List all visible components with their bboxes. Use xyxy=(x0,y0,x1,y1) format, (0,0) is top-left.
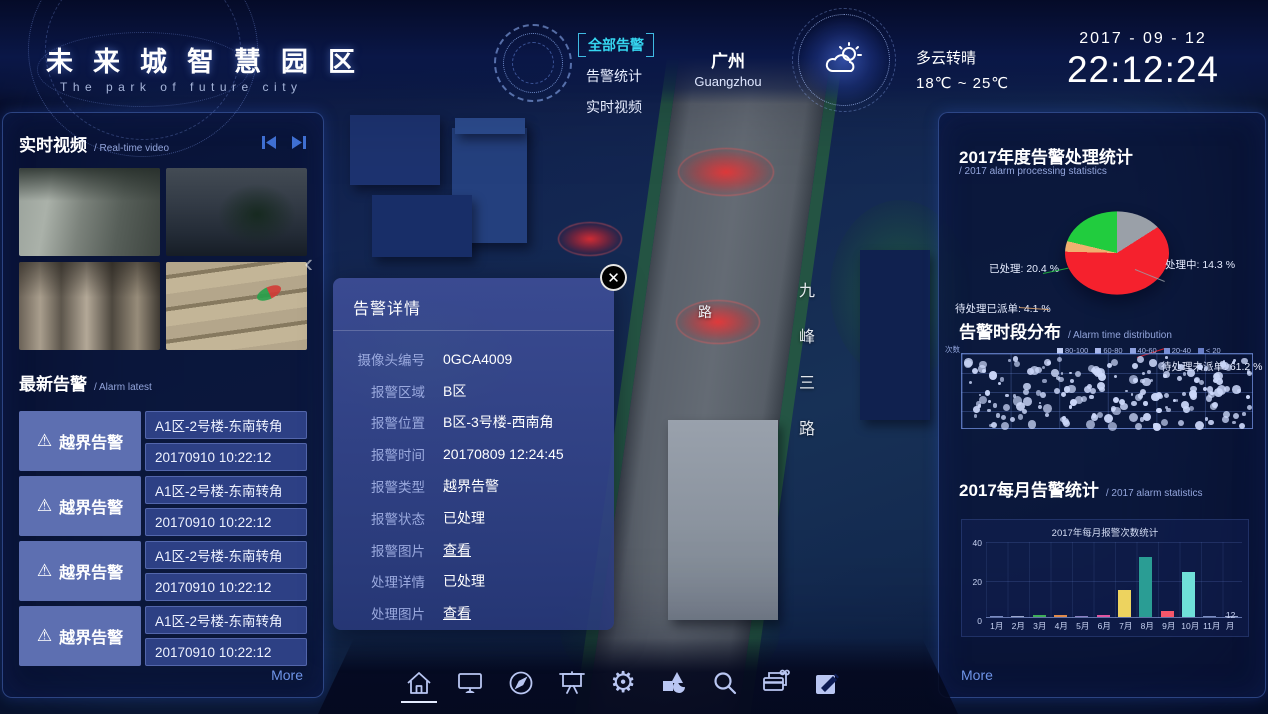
scatter-dot xyxy=(1182,392,1187,397)
scatter-dot xyxy=(1092,413,1096,417)
app-subtitle: The park of future city xyxy=(60,80,303,94)
scatter-dot xyxy=(1161,419,1168,426)
scatter-dot xyxy=(1176,399,1179,402)
scatter-dot xyxy=(993,403,997,407)
alarm-type-badge: ⚠越界告警 xyxy=(19,606,141,666)
alarm-location: A1区-2号楼-东南转角 xyxy=(145,476,307,504)
header: 未来城智慧园区 The park of future city 全部告警告警统计… xyxy=(0,0,1268,104)
skip-next-icon[interactable] xyxy=(291,135,307,150)
scatter-dot xyxy=(1140,389,1146,395)
scatter-dot xyxy=(1131,393,1134,396)
modal-row-value: 20170809 12:24:45 xyxy=(443,446,564,462)
scatter-dot xyxy=(974,414,978,418)
scatter-dot xyxy=(1023,397,1032,406)
bar xyxy=(1075,616,1088,618)
close-icon[interactable]: ✕ xyxy=(600,264,627,291)
right-panel: 2017年度告警处理统计 / 2017 alarm processing sta… xyxy=(938,112,1266,698)
scatter-dot xyxy=(996,413,1000,417)
scatter-dot xyxy=(987,409,990,412)
stats-more-link[interactable]: More xyxy=(961,667,993,683)
alarm-location: A1区-2号楼-东南转角 xyxy=(145,606,307,634)
scatter-dot xyxy=(1043,404,1052,413)
x-tick-label: 6月 xyxy=(1098,620,1111,632)
scatter-dot xyxy=(1153,423,1158,428)
scatter-dot xyxy=(1113,397,1119,403)
alarm-type-label: 越界告警 xyxy=(59,494,123,518)
scatter-dot xyxy=(998,382,1001,385)
weather-widget xyxy=(798,14,890,106)
view-link[interactable]: 查看 xyxy=(443,603,471,623)
scatter-dot xyxy=(1197,364,1203,370)
scatter-dot xyxy=(1214,388,1223,397)
compass-icon[interactable] xyxy=(506,666,536,700)
scatter-dot xyxy=(1199,380,1204,385)
scatter-dot xyxy=(1135,423,1142,430)
scatter-dot xyxy=(988,400,991,403)
scatter-dot xyxy=(1233,413,1239,419)
modal-row-value: 越界告警 xyxy=(443,476,499,496)
scatter-dot xyxy=(1067,385,1075,393)
modal-row-label: 处理图片 xyxy=(333,603,425,623)
bar xyxy=(1118,590,1131,617)
scatter-dot xyxy=(1143,413,1151,421)
modal-row-label: 报警区域 xyxy=(333,381,425,401)
x-tick-label: 5月 xyxy=(1076,620,1089,632)
ring-graphic-icon xyxy=(494,24,572,102)
x-tick-label: 1月 xyxy=(990,620,1003,632)
scatter-dot xyxy=(1008,359,1011,362)
warning-icon: ⚠ xyxy=(37,561,52,581)
y-tick-label: 0 xyxy=(964,616,982,626)
scatter-dot xyxy=(964,358,973,367)
left-panel: 实时视频 / Real-time video ‹ 最新告警 / Alarm la… xyxy=(2,112,324,698)
scatter-dot xyxy=(989,424,993,428)
bar xyxy=(1203,616,1216,618)
scatter-dot xyxy=(1045,413,1050,418)
main-nav: 全部告警告警统计实时视频 xyxy=(578,33,654,119)
date-label: 2017 - 09 - 12 xyxy=(1063,30,1223,48)
scatter-dot xyxy=(1187,369,1195,377)
modal-row-label: 报警时间 xyxy=(333,444,425,464)
bar xyxy=(1161,611,1174,617)
view-link[interactable]: 查看 xyxy=(443,540,471,560)
scatter-dot xyxy=(1062,416,1066,420)
warning-icon: ⚠ xyxy=(37,431,52,451)
alarm-detail-modal: 告警详情 摄像头编号0GCA4009报警区域B区报警位置B区-3号楼-西南角报警… xyxy=(333,278,614,630)
modal-row: 报警时间20170809 12:24:45 xyxy=(333,438,614,470)
scatter-dot xyxy=(1246,395,1250,399)
bar xyxy=(1054,615,1067,617)
scatter-dot xyxy=(1013,356,1018,361)
modal-row-value: 0GCA4009 xyxy=(443,351,512,367)
sun-cloud-icon xyxy=(823,41,865,79)
scatter-dot xyxy=(972,368,978,374)
scatter-dot xyxy=(1111,359,1118,366)
x-tick-label: 9月 xyxy=(1162,620,1175,632)
scatter-dot xyxy=(1143,401,1148,406)
video-thumbnail-2[interactable] xyxy=(166,168,307,256)
scatter-dot xyxy=(1030,366,1039,375)
gear-icon[interactable]: ⚙ xyxy=(608,666,638,700)
scatter-dot xyxy=(1097,412,1104,419)
datetime: 2017 - 09 - 12 22:12:24 xyxy=(1063,30,1223,91)
scatter-dot xyxy=(1239,423,1245,429)
shapes-icon[interactable] xyxy=(659,666,689,700)
scatter-dot xyxy=(1247,405,1252,410)
scatter-dot xyxy=(1147,370,1151,374)
scatter-dot xyxy=(1044,359,1051,366)
scatter-dot xyxy=(1158,362,1166,370)
scatter-dot xyxy=(1247,371,1252,376)
scatter-dot xyxy=(1214,372,1222,380)
scatter-dot xyxy=(1156,392,1162,398)
nav-item[interactable]: 全部告警 xyxy=(578,33,654,57)
bar-plot-area xyxy=(986,542,1242,618)
scatter-dot xyxy=(1125,390,1128,393)
video-grid: ‹ xyxy=(19,168,307,350)
modal-row-label: 报警图片 xyxy=(333,540,425,560)
scatter-dot xyxy=(1096,368,1105,377)
scatter-section-title: 告警时段分布 xyxy=(959,318,1061,343)
scatter-dot xyxy=(1005,394,1009,398)
scatter-axis-label: 次数 xyxy=(945,344,960,355)
alarm-section-title: 最新告警 xyxy=(19,370,87,395)
monitor-icon[interactable] xyxy=(455,666,485,700)
scatter-dot xyxy=(1038,405,1042,409)
bar xyxy=(1182,572,1195,617)
scatter-dot xyxy=(1140,417,1144,421)
city-name-en: Guangzhou xyxy=(683,74,773,89)
scatter-dot xyxy=(1212,402,1218,408)
screen-icon[interactable] xyxy=(557,666,587,700)
scatter-dot xyxy=(1023,383,1031,391)
modal-row: 报警类型越界告警 xyxy=(333,470,614,502)
scatter-dot xyxy=(1135,394,1142,401)
alarm-row[interactable]: ⚠越界告警A1区-2号楼-东南转角20170910 10:22:12 xyxy=(19,476,307,536)
scatter-dot xyxy=(1177,376,1182,381)
pie-slice-label: 处理中: 14.3 % xyxy=(1165,257,1235,272)
alarm-type-badge: ⚠越界告警 xyxy=(19,541,141,601)
scatter-dot xyxy=(1091,368,1096,373)
toolbar: ⚙ xyxy=(404,666,842,700)
scatter-dot xyxy=(1208,420,1214,426)
edit-icon[interactable] xyxy=(812,666,842,700)
alarm-section-subtitle: / Alarm latest xyxy=(94,382,152,393)
bar xyxy=(1033,615,1046,617)
scatter-dot xyxy=(1129,375,1138,384)
bar-chart-title: 2017年每月报警次数统计 xyxy=(962,525,1248,539)
x-tick-label: 4月 xyxy=(1055,620,1068,632)
scatter-dot xyxy=(1001,415,1006,420)
alarm-row[interactable]: ⚠越界告警A1区-2号楼-东南转角20170910 10:22:12 xyxy=(19,541,307,601)
scatter-dot xyxy=(1075,371,1081,377)
scatter-dot xyxy=(1042,366,1045,369)
search-icon[interactable] xyxy=(710,666,740,700)
alarm-row[interactable]: ⚠越界告警A1区-2号楼-东南转角20170910 10:22:12 xyxy=(19,606,307,666)
scatter-dot xyxy=(1129,413,1138,422)
scatter-chart xyxy=(961,353,1253,429)
scatter-dot xyxy=(1057,357,1062,362)
scatter-dot xyxy=(978,365,985,372)
weather-text: 多云转晴 18℃ ~ 25℃ xyxy=(916,47,1009,92)
scatter-dot xyxy=(1178,420,1185,427)
scatter-dot xyxy=(1233,359,1236,362)
scatter-dot xyxy=(1001,422,1009,430)
alarm-type-badge: ⚠越界告警 xyxy=(19,476,141,536)
pie-section-subtitle: / 2017 alarm processing statistics xyxy=(959,166,1107,177)
x-tick-label: 11月 xyxy=(1203,620,1220,632)
scatter-dot xyxy=(1204,366,1209,371)
x-tick-label: 2月 xyxy=(1012,620,1025,632)
scatter-dot xyxy=(1195,421,1204,430)
city-name-cn: 广州 xyxy=(683,47,773,72)
warning-icon: ⚠ xyxy=(37,626,52,646)
scatter-dot xyxy=(1232,421,1236,425)
modal-row-label: 报警位置 xyxy=(333,412,425,432)
video-thumbnail-3[interactable] xyxy=(19,262,160,350)
x-tick-label: 7月 xyxy=(1119,620,1132,632)
alarm-list: ⚠越界告警A1区-2号楼-东南转角20170910 10:22:12⚠越界告警A… xyxy=(19,411,307,666)
bar-section-title: 2017每月告警统计 xyxy=(959,476,1099,501)
scatter-dot xyxy=(1018,414,1024,420)
scatter-dot xyxy=(1190,386,1197,393)
scatter-dot xyxy=(1164,393,1169,398)
skip-previous-icon[interactable] xyxy=(261,135,277,150)
alarm-time: 20170910 10:22:12 xyxy=(145,443,307,471)
scatter-dot xyxy=(1225,364,1232,371)
scatter-dot xyxy=(1000,377,1005,382)
clock: 22:12:24 xyxy=(1063,49,1223,91)
scatter-dot xyxy=(1084,386,1091,393)
modal-row: 报警位置B区-3号楼-西南角 xyxy=(333,407,614,439)
alarm-location: A1区-2号楼-东南转角 xyxy=(145,411,307,439)
alarm-location: A1区-2号楼-东南转角 xyxy=(145,541,307,569)
alarm-time: 20170910 10:22:12 xyxy=(145,508,307,536)
scatter-dot xyxy=(1061,392,1066,397)
scatter-dot xyxy=(1010,417,1015,422)
bar xyxy=(1011,616,1024,618)
bar xyxy=(1139,557,1152,617)
modal-row-value: B区 xyxy=(443,381,466,401)
video-thumbnail-1[interactable] xyxy=(19,168,160,256)
scatter-dot xyxy=(1028,420,1037,429)
home-icon[interactable] xyxy=(404,666,434,700)
modal-row-label: 报警类型 xyxy=(333,476,425,496)
alarm-time: 20170910 10:22:12 xyxy=(145,638,307,666)
billing-icon[interactable] xyxy=(761,666,791,700)
scatter-dot xyxy=(1241,358,1247,364)
alarm-type-label: 越界告警 xyxy=(59,429,123,453)
scatter-dot xyxy=(1016,402,1025,411)
alarm-more-link[interactable]: More xyxy=(271,667,303,683)
scatter-dot xyxy=(1081,396,1087,402)
modal-row-label: 处理详情 xyxy=(333,571,425,591)
weather-condition: 多云转晴 xyxy=(916,47,1009,68)
modal-row-label: 报警状态 xyxy=(333,508,425,528)
dashboard: 九峰三路 路 未来城智慧园区 The park of future city 全… xyxy=(0,0,1268,714)
scatter-dot xyxy=(1178,364,1184,370)
y-tick-label: 20 xyxy=(964,577,982,587)
scatter-dot xyxy=(1090,388,1096,394)
scatter-dot xyxy=(1114,375,1118,379)
modal-row-value: B区-3号楼-西南角 xyxy=(443,412,553,432)
nav-item[interactable]: 实时视频 xyxy=(578,95,654,119)
y-tick-label: 40 xyxy=(964,538,982,548)
scatter-dot xyxy=(1140,379,1144,383)
scatter-dot xyxy=(1222,416,1229,423)
scatter-dot xyxy=(1069,405,1073,409)
scatter-section-subtitle: / Alarm time distribution xyxy=(1068,330,1172,341)
modal-row: 摄像头编号0GCA4009 xyxy=(333,343,614,375)
scatter-dot xyxy=(1223,360,1226,363)
bar xyxy=(1097,615,1110,617)
scatter-dot xyxy=(1070,379,1075,384)
scatter-dot xyxy=(1242,412,1246,416)
pie-slice-label: 已处理: 20.4 % xyxy=(989,261,1059,276)
bar xyxy=(990,616,1003,618)
scatter-dot xyxy=(1183,372,1187,376)
warning-icon: ⚠ xyxy=(37,496,52,516)
modal-row: 报警图片查看 xyxy=(333,534,614,566)
x-tick-label: 8月 xyxy=(1141,620,1154,632)
scatter-dot xyxy=(1086,420,1095,429)
scatter-dot xyxy=(973,406,980,413)
modal-title: 告警详情 xyxy=(333,278,614,330)
x-tick-label: 3月 xyxy=(1033,620,1046,632)
carousel-chevron-icon[interactable]: ‹ xyxy=(304,248,313,279)
x-tick-label: 12月 xyxy=(1226,610,1241,632)
scatter-dot xyxy=(1058,377,1063,382)
scatter-dot xyxy=(1207,386,1213,392)
scatter-dot xyxy=(1165,356,1168,359)
alarm-type-badge: ⚠越界告警 xyxy=(19,411,141,471)
scatter-dot xyxy=(1131,401,1137,407)
scatter-dot xyxy=(1137,356,1144,363)
scatter-dot xyxy=(1206,395,1212,401)
scatter-dot xyxy=(1149,359,1156,366)
scatter-dot xyxy=(1108,422,1117,431)
modal-row-value: 已处理 xyxy=(443,508,485,528)
bar-chart: 2017年每月报警次数统计 020401月2月3月4月5月6月7月8月9月10月… xyxy=(961,519,1249,637)
scatter-dot xyxy=(1003,404,1010,411)
scatter-dot xyxy=(1014,361,1020,367)
scatter-dot xyxy=(1054,388,1061,395)
modal-row-value: 已处理 xyxy=(443,571,485,591)
video-thumbnail-4[interactable] xyxy=(166,262,307,350)
x-tick-label: 10月 xyxy=(1181,620,1199,632)
nav-item[interactable]: 告警统计 xyxy=(578,64,654,88)
scatter-dot xyxy=(1036,390,1042,396)
scatter-dot xyxy=(969,381,972,384)
city-block: 广州 Guangzhou xyxy=(683,47,773,89)
pie-graphic xyxy=(1065,211,1169,294)
scatter-dot xyxy=(1232,385,1241,394)
scatter-dot xyxy=(1189,406,1194,411)
scatter-dot xyxy=(985,390,991,396)
alarm-row[interactable]: ⚠越界告警A1区-2号楼-东南转角20170910 10:22:12 xyxy=(19,411,307,471)
modal-row: 处理图片查看 xyxy=(333,597,614,629)
modal-row: 报警区域B区 xyxy=(333,375,614,407)
scatter-dot xyxy=(1142,372,1145,375)
scatter-dot xyxy=(1132,363,1138,369)
bar-section-subtitle: / 2017 alarm statistics xyxy=(1106,488,1203,499)
modal-row: 报警状态已处理 xyxy=(333,502,614,534)
temperature-range: 18℃ ~ 25℃ xyxy=(916,74,1009,92)
scatter-dot xyxy=(1069,372,1072,375)
scatter-dot xyxy=(1061,372,1064,375)
scatter-dot xyxy=(989,371,997,379)
pie-section-title: 2017年度告警处理统计 xyxy=(959,143,1133,168)
app-title: 未来城智慧园区 xyxy=(46,40,375,79)
scatter-dot xyxy=(1042,379,1046,383)
scatter-dot xyxy=(1089,395,1093,399)
alarm-type-label: 越界告警 xyxy=(59,624,123,648)
scatter-dot xyxy=(1156,408,1162,414)
modal-rows: 摄像头编号0GCA4009报警区域B区报警位置B区-3号楼-西南角报警时间201… xyxy=(333,331,614,629)
pie-chart: 处理中: 14.3 %待处理未派单: 61.2 %待处理已派单: 4.1 %已处… xyxy=(939,183,1267,318)
modal-row-label: 摄像头编号 xyxy=(333,349,425,369)
modal-row: 处理详情已处理 xyxy=(333,566,614,598)
alarm-time: 20170910 10:22:12 xyxy=(145,573,307,601)
alarm-type-label: 越界告警 xyxy=(59,559,123,583)
